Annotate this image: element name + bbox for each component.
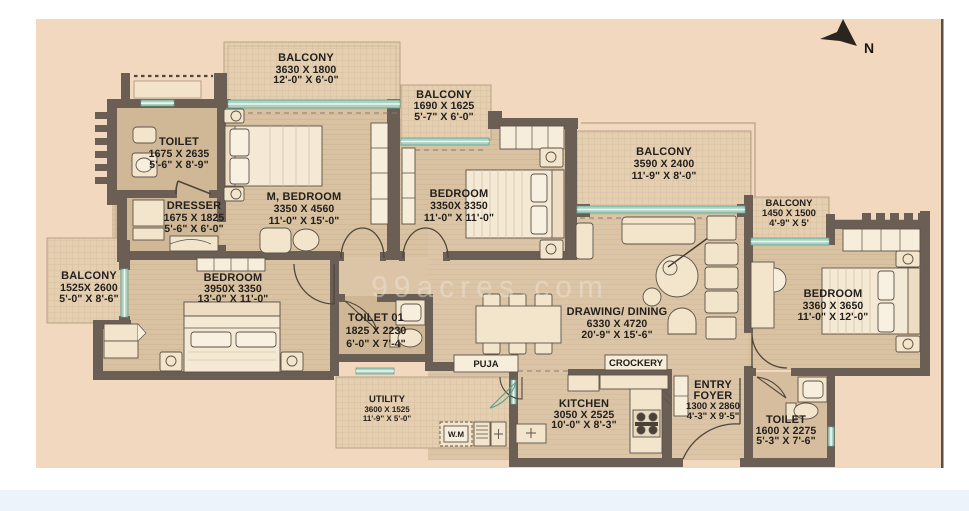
svg-text:6'-0" X 7'-4": 6'-0" X 7'-4" bbox=[346, 338, 405, 350]
svg-text:4'-9" X 5': 4'-9" X 5' bbox=[769, 218, 809, 229]
svg-text:5'-6" X 6'-0": 5'-6" X 6'-0" bbox=[164, 223, 223, 235]
svg-text:5'-0" X 8'-6": 5'-0" X 8'-6" bbox=[59, 293, 118, 305]
svg-text:3350X 3350: 3350X 3350 bbox=[430, 200, 488, 212]
svg-text:M, BEDROOM: M, BEDROOM bbox=[267, 191, 342, 203]
svg-text:DRAWING/ DINING: DRAWING/ DINING bbox=[567, 306, 668, 318]
svg-text:TOILET: TOILET bbox=[159, 136, 199, 148]
svg-text:10'-0" X 8'-3": 10'-0" X 8'-3" bbox=[551, 419, 616, 431]
svg-text:11'-0" X 12'-0": 11'-0" X 12'-0" bbox=[798, 311, 869, 323]
svg-text:BEDROOM: BEDROOM bbox=[430, 188, 489, 200]
svg-text:N: N bbox=[864, 40, 874, 56]
svg-text:3600 X 1525: 3600 X 1525 bbox=[364, 405, 410, 414]
svg-text:W.M: W.M bbox=[448, 430, 464, 439]
svg-text:5'-7" X 6'-0": 5'-7" X 6'-0" bbox=[414, 111, 473, 123]
svg-text:DRESSER: DRESSER bbox=[167, 200, 222, 212]
svg-text:BEDROOM: BEDROOM bbox=[804, 288, 863, 300]
svg-text:11'-0" X 15'-0": 11'-0" X 15'-0" bbox=[269, 215, 340, 227]
svg-text:20'-9" X 15'-6": 20'-9" X 15'-6" bbox=[581, 329, 652, 341]
svg-text:11'-9" X 5'-0": 11'-9" X 5'-0" bbox=[363, 414, 412, 423]
svg-text:BALCONY: BALCONY bbox=[61, 270, 117, 282]
svg-text:BALCONY: BALCONY bbox=[278, 52, 334, 64]
svg-text:1825 X 2230: 1825 X 2230 bbox=[346, 325, 407, 337]
svg-text:4'-3" X 9'-5": 4'-3" X 9'-5" bbox=[687, 411, 740, 422]
svg-text:BALCONY: BALCONY bbox=[636, 146, 692, 158]
svg-text:12'-0" X 6'-0": 12'-0" X 6'-0" bbox=[273, 74, 338, 86]
svg-text:11'-0" X 11'-0": 11'-0" X 11'-0" bbox=[424, 212, 494, 224]
svg-text:TOILET 01: TOILET 01 bbox=[348, 312, 404, 324]
svg-text:99acres.com: 99acres.com bbox=[371, 271, 609, 304]
svg-text:UTILITY: UTILITY bbox=[369, 394, 406, 405]
svg-text:5'-6" X 8'-9": 5'-6" X 8'-9" bbox=[149, 159, 208, 171]
svg-text:13'-0" X 11'-0": 13'-0" X 11'-0" bbox=[198, 293, 269, 305]
svg-text:CROCKERY: CROCKERY bbox=[609, 358, 664, 369]
svg-text:5'-3" X 7'-6": 5'-3" X 7'-6" bbox=[756, 435, 815, 447]
svg-text:11'-9" X 8'-0": 11'-9" X 8'-0" bbox=[632, 170, 697, 182]
svg-text:3590 X 2400: 3590 X 2400 bbox=[634, 158, 695, 170]
svg-text:PUJA: PUJA bbox=[473, 359, 498, 370]
svg-text:3350 X 4560: 3350 X 4560 bbox=[274, 203, 335, 215]
